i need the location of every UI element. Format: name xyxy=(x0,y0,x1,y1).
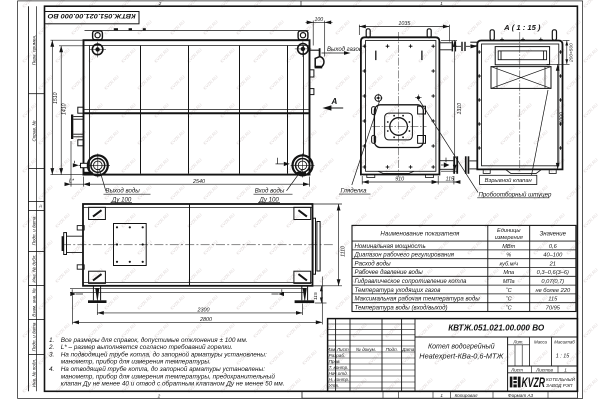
svg-text:115: 115 xyxy=(548,297,558,303)
svg-text:70/95: 70/95 xyxy=(546,305,561,311)
svg-text:0,6: 0,6 xyxy=(549,244,558,250)
svg-text:2300: 2300 xyxy=(197,308,210,314)
svg-text:L*: L* xyxy=(69,179,75,185)
svg-text:2.: 2. xyxy=(48,344,54,351)
svg-text:Масса: Масса xyxy=(534,339,548,344)
svg-text:115: 115 xyxy=(446,177,454,183)
svg-text:Ду 100: Ду 100 xyxy=(111,196,132,203)
svg-text:Пров.: Пров. xyxy=(329,359,341,364)
svg-text:манометр, прибор для измерения: манометр, прибор для измерения температу… xyxy=(61,372,276,380)
svg-text:На отводящей трубе котла, до з: На отводящей трубе котла, до запорной ар… xyxy=(61,365,266,373)
svg-text:200×500: 200×500 xyxy=(568,43,574,63)
svg-text:Нач.отд.: Нач.отд. xyxy=(329,371,348,376)
svg-text:Лит.: Лит. xyxy=(512,339,523,344)
svg-text:КОТЕЛЬНЫЙ: КОТЕЛЬНЫЙ xyxy=(546,375,576,382)
svg-text:Диапазон рабочего регулировани: Диапазон рабочего регулирования xyxy=(354,252,455,259)
svg-text:Взам. инв. №: Взам. инв. № xyxy=(31,288,36,316)
svg-text:Вход воды: Вход воды xyxy=(255,188,285,195)
svg-text:Т. контр.: Т. контр. xyxy=(329,365,349,370)
svg-text:Взрывной клапан: Взрывной клапан xyxy=(485,177,533,184)
svg-text:3.: 3. xyxy=(49,351,54,358)
svg-text:Масштаб: Масштаб xyxy=(554,339,575,344)
svg-text:Лист: Лист xyxy=(510,367,523,372)
svg-text:№ докум.: № докум. xyxy=(356,347,376,352)
svg-text:куб.м/ч: куб.м/ч xyxy=(499,261,518,267)
svg-text:Справ. №: Справ. № xyxy=(31,121,36,142)
svg-text:Гляделка: Гляделка xyxy=(341,188,368,195)
svg-text:Мпа: Мпа xyxy=(503,270,514,276)
svg-text:не более 220: не более 220 xyxy=(535,288,571,294)
svg-text:Гидравлическое сопротивление к: Гидравлическое сопротивление котла xyxy=(355,278,468,285)
svg-text:4.: 4. xyxy=(49,366,54,373)
svg-text:1310: 1310 xyxy=(457,103,463,115)
svg-text:Перв. примен.: Перв. примен. xyxy=(31,35,36,66)
svg-text:Наименование показателя: Наименование показателя xyxy=(380,231,460,238)
svg-text:Значение: Значение xyxy=(540,232,567,238)
svg-text:КВТЖ.051.021.00.000 ВО: КВТЖ.051.021.00.000 ВО xyxy=(448,324,545,333)
svg-text:Максимальная рабочая температу: Максимальная рабочая температура воды xyxy=(355,296,481,303)
svg-text:1.: 1. xyxy=(49,337,54,344)
svg-text:Heatexpert-КВа-0,6-МТЖ: Heatexpert-КВа-0,6-МТЖ xyxy=(419,353,504,360)
svg-text:1: 1 xyxy=(564,367,567,372)
svg-text:1510: 1510 xyxy=(53,92,59,104)
svg-text:измерения: измерения xyxy=(495,235,523,241)
svg-text:0,07(0,7): 0,07(0,7) xyxy=(541,279,564,285)
svg-text:Выход воды: Выход воды xyxy=(106,188,141,195)
svg-text:Листов: Листов xyxy=(535,367,553,372)
svg-text:1 : 15: 1 : 15 xyxy=(556,354,570,360)
svg-text:Лист: Лист xyxy=(336,347,349,352)
svg-text:Н. контр.: Н. контр. xyxy=(329,377,350,382)
svg-text:910: 910 xyxy=(395,177,404,183)
svg-text:100: 100 xyxy=(314,17,323,23)
svg-text:Разраб.: Разраб. xyxy=(329,353,346,358)
svg-text:˚С: ˚С xyxy=(506,296,513,303)
svg-text:Инв. № дубл.: Инв. № дубл. xyxy=(31,254,36,282)
svg-text:Единицы: Единицы xyxy=(497,228,520,234)
svg-text:Расход воды: Расход воды xyxy=(355,260,392,267)
svg-text:КВТЖ.051.021.00.000 ВО: КВТЖ.051.021.00.000 ВО xyxy=(47,12,136,19)
svg-text:1410: 1410 xyxy=(62,103,68,115)
svg-text:2: 2 xyxy=(157,393,161,398)
svg-text:МПа: МПа xyxy=(503,279,515,285)
svg-text:˚С: ˚С xyxy=(506,287,513,294)
svg-text:А ( 1 : 15 ): А ( 1 : 15 ) xyxy=(503,23,541,32)
svg-text:ЗАВОД РЭП: ЗАВОД РЭП xyxy=(546,383,573,388)
svg-text:Формат А3: Формат А3 xyxy=(508,393,534,398)
svg-text:2: 2 xyxy=(158,1,162,6)
svg-text:Ду 100: Ду 100 xyxy=(259,196,280,203)
svg-text:˚С: ˚С xyxy=(506,304,513,311)
svg-text:Дата: Дата xyxy=(401,347,415,352)
svg-text:Рабочее давление воды: Рабочее давление воды xyxy=(355,269,424,276)
svg-text:Подп. и дата: Подп. и дата xyxy=(31,322,36,351)
svg-text:Котел водогрейный: Котел водогрейный xyxy=(428,342,495,350)
svg-text:Температура воды (вход/выход): Температура воды (вход/выход) xyxy=(355,304,448,311)
svg-text:Изм.: Изм. xyxy=(327,347,337,352)
svg-text:МВт: МВт xyxy=(502,244,515,250)
svg-text:Подп. и дата: Подп. и дата xyxy=(31,216,36,245)
svg-text:1110: 1110 xyxy=(341,246,347,257)
svg-text:1090: 1090 xyxy=(560,112,566,124)
svg-text:1035: 1035 xyxy=(398,21,411,27)
svg-text:L* – размер выполняется соглас: L* – размер выполняется согласно требова… xyxy=(61,343,233,351)
svg-text:0,3–0,6(3–6): 0,3–0,6(3–6) xyxy=(537,270,569,276)
svg-text:Номинальная мощность: Номинальная мощность xyxy=(355,243,426,250)
svg-text:Пробоотборный штуцер: Пробоотборный штуцер xyxy=(479,191,553,198)
svg-text:Инв. № подл.: Инв. № подл. xyxy=(31,359,36,388)
svg-text:А: А xyxy=(331,97,338,106)
svg-text:KVZR: KVZR xyxy=(522,375,546,390)
svg-text:Утв.: Утв. xyxy=(329,383,339,388)
svg-text:А: А xyxy=(38,204,42,209)
svg-text:40–100: 40–100 xyxy=(543,253,563,259)
svg-text:2540: 2540 xyxy=(192,179,205,185)
svg-text:2800: 2800 xyxy=(199,317,212,323)
svg-text:Все размеры для справок, допус: Все размеры для справок, допустимые откл… xyxy=(61,336,248,344)
svg-text:%: % xyxy=(506,253,511,259)
svg-text:клапан Ду не менее 40 и отвод: клапан Ду не менее 40 и отвод с обратным… xyxy=(61,380,285,388)
svg-text:115: 115 xyxy=(313,292,319,300)
svg-text:21: 21 xyxy=(549,261,556,267)
svg-text:манометр, прибор для измерения: манометр, прибор для измерения температу… xyxy=(61,358,211,366)
svg-text:1: 1 xyxy=(440,393,443,398)
svg-text:Копировал: Копировал xyxy=(455,393,478,398)
svg-text:Температура уходящих газов: Температура уходящих газов xyxy=(355,287,441,294)
svg-text:Подп.: Подп. xyxy=(386,347,398,352)
svg-text:На подводящей трубе котла, до: На подводящей трубе котла, до запорной а… xyxy=(61,350,267,358)
